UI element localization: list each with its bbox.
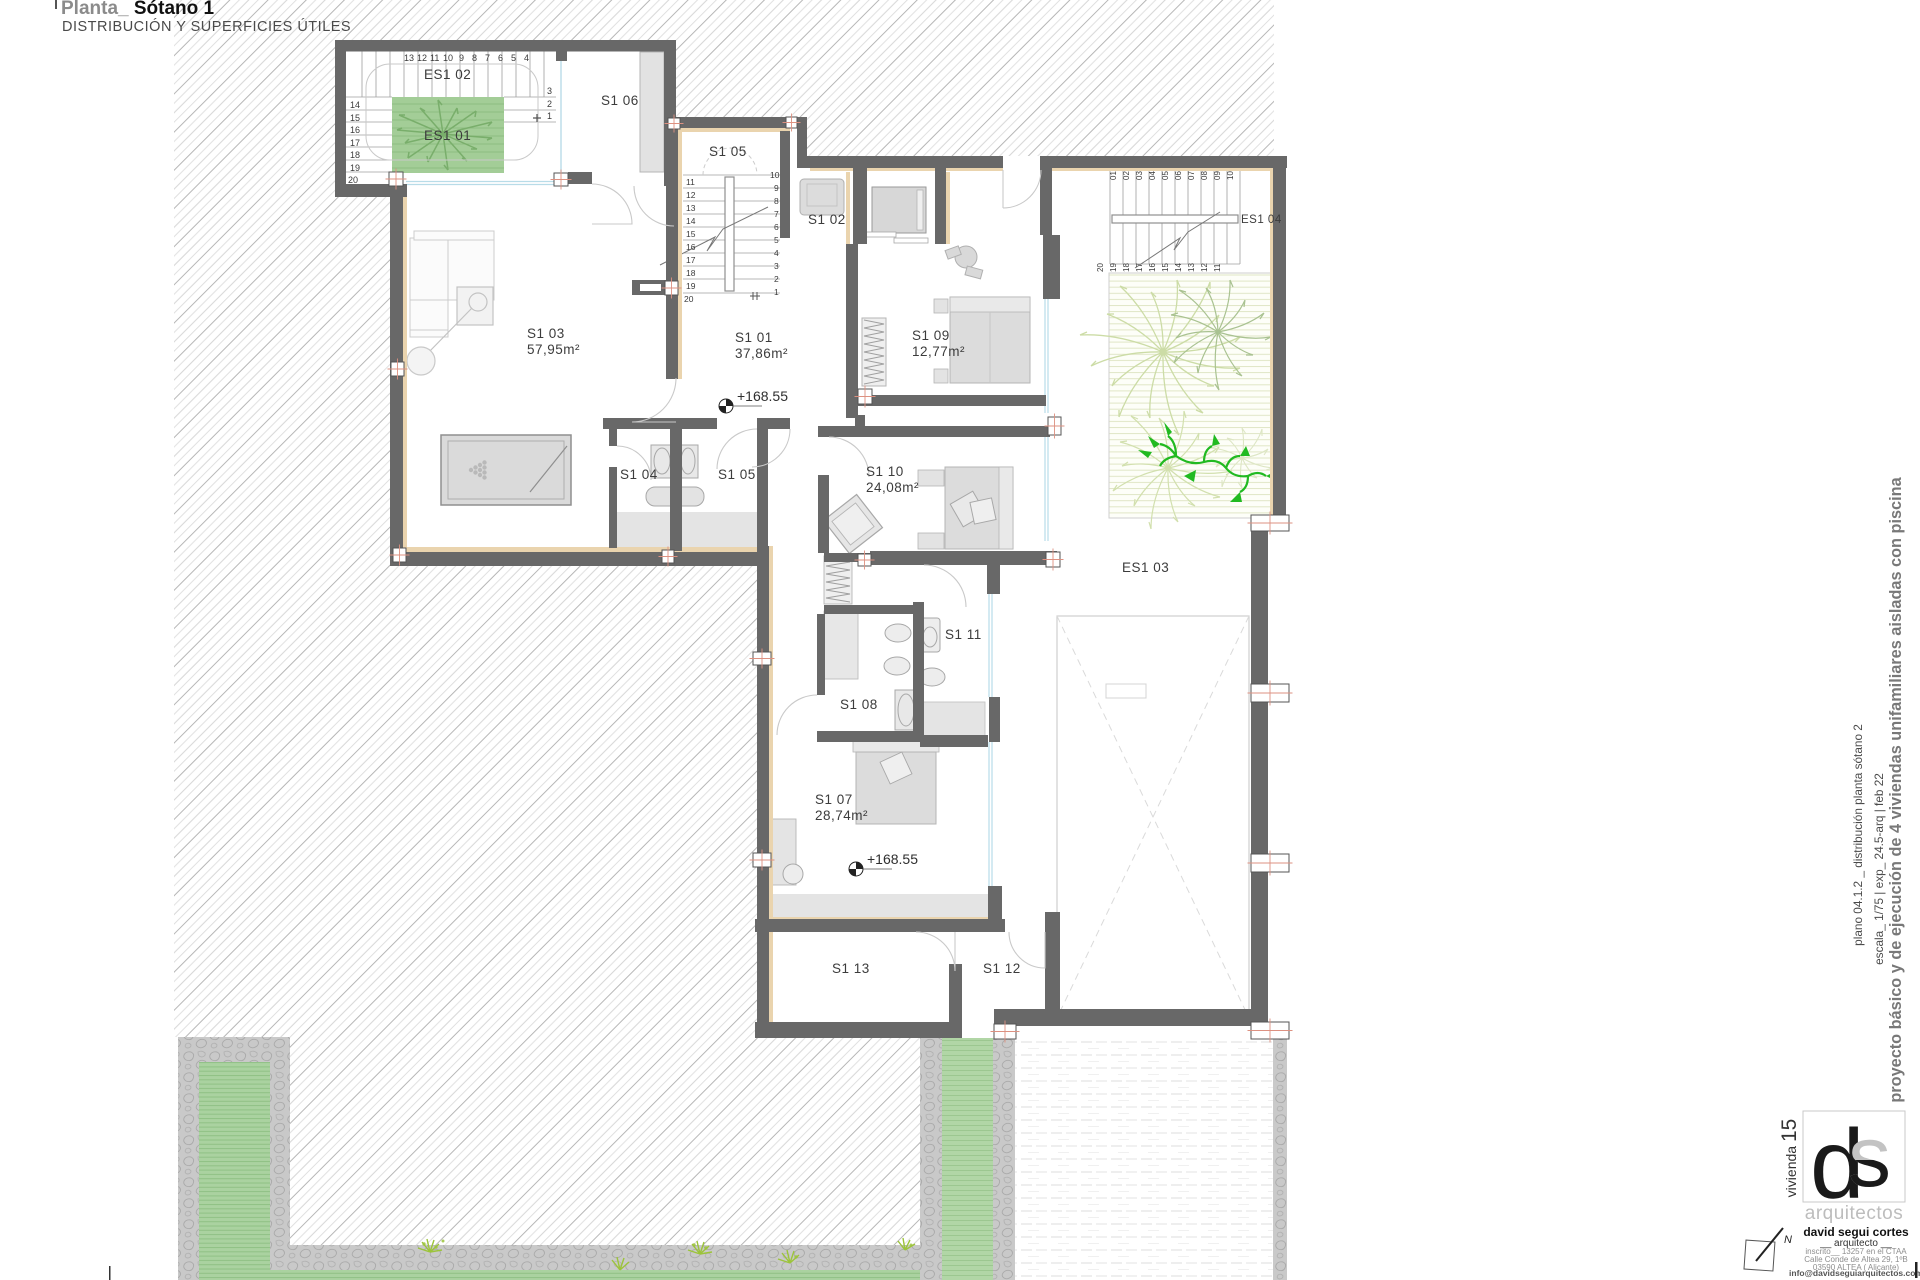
svg-text:20: 20 [684,294,694,304]
svg-text:02: 02 [1122,171,1131,180]
svg-text:9: 9 [459,53,464,63]
svg-text:14: 14 [1174,263,1183,272]
svg-text:8: 8 [472,53,477,63]
svg-text:9: 9 [774,183,779,193]
svg-text:8: 8 [774,196,779,206]
svg-text:20: 20 [1096,263,1105,272]
svg-text:17: 17 [1135,263,1144,272]
svg-text:S1 12: S1 12 [983,961,1021,976]
svg-text:ES1 04: ES1 04 [1241,214,1282,226]
svg-text:13: 13 [1187,263,1196,272]
svg-text:37,86m²: 37,86m² [735,346,788,361]
svg-text:S1 10: S1 10 [866,464,904,479]
svg-text:19: 19 [686,281,696,291]
svg-text:2: 2 [774,274,779,284]
svg-text:6: 6 [774,222,779,232]
svg-text:12: 12 [686,190,696,200]
svg-text:1: 1 [774,287,779,297]
svg-text:plano 04.1.2 _ distribución pl: plano 04.1.2 _ distribución planta sótan… [1851,724,1865,946]
svg-text:03: 03 [1135,171,1144,180]
svg-text:11: 11 [1213,263,1222,272]
svg-text:6: 6 [498,53,503,63]
svg-text:10: 10 [1226,171,1235,180]
svg-text:14: 14 [686,216,696,226]
svg-text:20: 20 [348,175,358,185]
svg-text:57,95m²: 57,95m² [527,342,580,357]
svg-text:ES1 02: ES1 02 [424,67,471,82]
svg-text:1: 1 [547,111,552,121]
svg-text:S1 11: S1 11 [945,627,982,642]
svg-text:05: 05 [1161,171,1170,180]
svg-text:10: 10 [770,170,780,180]
svg-text:5: 5 [774,235,779,245]
svg-text:13: 13 [404,53,414,63]
svg-text:16: 16 [686,242,696,252]
svg-text:arquitectos: arquitectos [1805,1203,1903,1224]
svg-text:14: 14 [350,100,360,110]
svg-text:01: 01 [1109,171,1118,180]
svg-text:3: 3 [547,86,552,96]
svg-text:07: 07 [1187,171,1196,180]
svg-text:12: 12 [1200,263,1209,272]
svg-text:18: 18 [1122,263,1131,272]
svg-text:S1 08: S1 08 [840,697,878,712]
svg-text:18: 18 [686,268,696,278]
svg-text:ES1 01: ES1 01 [424,128,471,143]
svg-text:proyecto básico y de ejecución: proyecto básico y de ejecución de 4 vivi… [1887,476,1905,1102]
svg-text:2: 2 [547,99,552,109]
svg-text:S1 02: S1 02 [808,212,846,227]
svg-text:S1 04: S1 04 [620,467,658,482]
svg-text:19: 19 [1109,263,1118,272]
svg-text:19: 19 [350,163,360,173]
svg-text:17: 17 [686,255,696,265]
svg-text:info@davidseguiarquitectos.com: info@davidseguiarquitectos.com [1789,1268,1920,1278]
svg-text:+168.55: +168.55 [867,851,918,867]
svg-text:06: 06 [1174,171,1183,180]
svg-text:13: 13 [686,203,696,213]
svg-text:4: 4 [774,248,779,258]
svg-text:15: 15 [1161,263,1170,272]
svg-text:24,08m²: 24,08m² [866,480,919,495]
svg-text:09: 09 [1213,171,1222,180]
svg-text:16: 16 [350,125,360,135]
svg-text:10: 10 [443,53,453,63]
svg-text:S1 06: S1 06 [601,93,639,108]
svg-text:11: 11 [686,177,695,187]
svg-text:ES1 03: ES1 03 [1122,560,1169,575]
svg-text:+168.55: +168.55 [737,388,788,404]
svg-text:S1 07: S1 07 [815,792,853,807]
svg-text:12: 12 [417,53,427,63]
svg-text:15: 15 [350,113,360,123]
svg-text:DISTRIBUCIÓN Y SUPERFICIES ÚTI: DISTRIBUCIÓN Y SUPERFICIES ÚTILES [62,18,351,35]
svg-text:15: 15 [686,229,696,239]
svg-text:7: 7 [774,209,779,219]
svg-text:S1 05: S1 05 [718,467,756,482]
svg-text:08: 08 [1200,171,1209,180]
svg-text:28,74m²: 28,74m² [815,808,868,823]
svg-text:5: 5 [511,53,516,63]
svg-text:16: 16 [1148,263,1157,272]
svg-text:7: 7 [485,53,490,63]
svg-text:12,77m²: 12,77m² [912,344,965,359]
svg-text:escala_ 1/75 | exp_ 24.5-arq: escala_ 1/75 | exp_ 24.5-arq | feb 22 [1872,773,1886,965]
svg-text:17: 17 [350,138,360,148]
svg-text:S1 05: S1 05 [709,144,747,159]
svg-text:3: 3 [774,261,779,271]
svg-text:4: 4 [524,53,529,63]
svg-text:18: 18 [350,150,360,160]
svg-text:S1 01: S1 01 [735,330,773,345]
svg-text:S1 09: S1 09 [912,328,950,343]
svg-text:04: 04 [1148,171,1157,180]
svg-text:11: 11 [430,53,439,63]
svg-text:Planta_ Sótano 1: Planta_ Sótano 1 [61,0,215,19]
svg-text:N: N [1784,1234,1792,1246]
svg-text:S1 03: S1 03 [527,326,565,341]
svg-text:S1 13: S1 13 [832,961,870,976]
svg-text:david segui cortes: david segui cortes [1803,1225,1909,1239]
